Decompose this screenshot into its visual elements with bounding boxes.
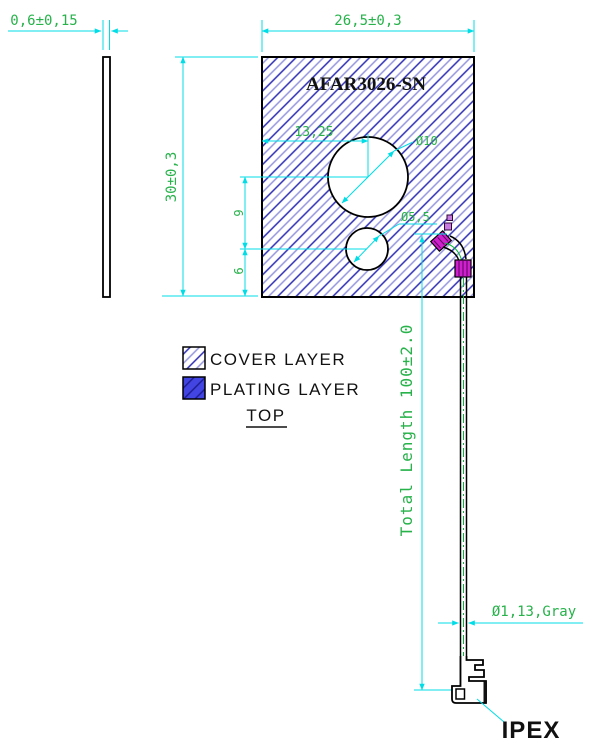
cable-diameter-dimension-label: Ø1,13,Gray	[492, 604, 576, 620]
cover-layer-swatch	[183, 347, 205, 369]
cad-drawing-canvas: 0,6±0,15 AFAR3026-SN 26,5±0,3 30±0,3 13,…	[0, 0, 600, 750]
small-hole-diameter-label: Ø5,5	[401, 210, 430, 224]
bottom-offset-dimension-label: 6	[232, 267, 246, 274]
legend: COVER LAYER PLATING LAYER TOP	[183, 347, 360, 427]
part-number-label: AFAR3026-SN	[306, 74, 426, 95]
board-height-dimension-label: 30±0,3	[164, 152, 180, 203]
board-width-dimension-label: 26,5±0,3	[334, 13, 401, 29]
antenna-drawing-svg: 0,6±0,15 AFAR3026-SN 26,5±0,3 30±0,3 13,…	[0, 0, 600, 750]
ipex-connector-edge	[484, 682, 488, 703]
plating-layer-label: PLATING LAYER	[210, 380, 360, 399]
hole-spacing-dimension-label: 9	[232, 209, 246, 216]
top-view-label: TOP	[246, 406, 285, 425]
cover-layer-label: COVER LAYER	[210, 350, 346, 369]
ipex-label: IPEX	[502, 717, 561, 744]
ipex-connector-pin	[456, 689, 465, 699]
coax-cable	[461, 277, 467, 698]
dimension-board-width: 26,5±0,3	[262, 13, 474, 52]
plating-layer-swatch	[183, 377, 205, 399]
dimension-bottom-offset: 6	[232, 249, 246, 296]
hole-offset-dimension-label: 13,25	[294, 125, 333, 140]
solder-dot-large	[445, 223, 452, 230]
large-hole-diameter-label: Ø10	[416, 134, 438, 148]
ipex-leader-line	[477, 699, 504, 722]
dimension-thickness: 0,6±0,15	[8, 13, 128, 50]
solder-dot-small	[447, 215, 453, 221]
cable-length-dimension-label: Total Length 100±2.0	[397, 324, 416, 537]
dimension-cable-length: Total Length 100±2.0	[397, 234, 460, 690]
ipex-connector: IPEX	[452, 656, 560, 744]
board-side-view	[103, 57, 110, 297]
thickness-dimension-label: 0,6±0,15	[10, 13, 77, 29]
